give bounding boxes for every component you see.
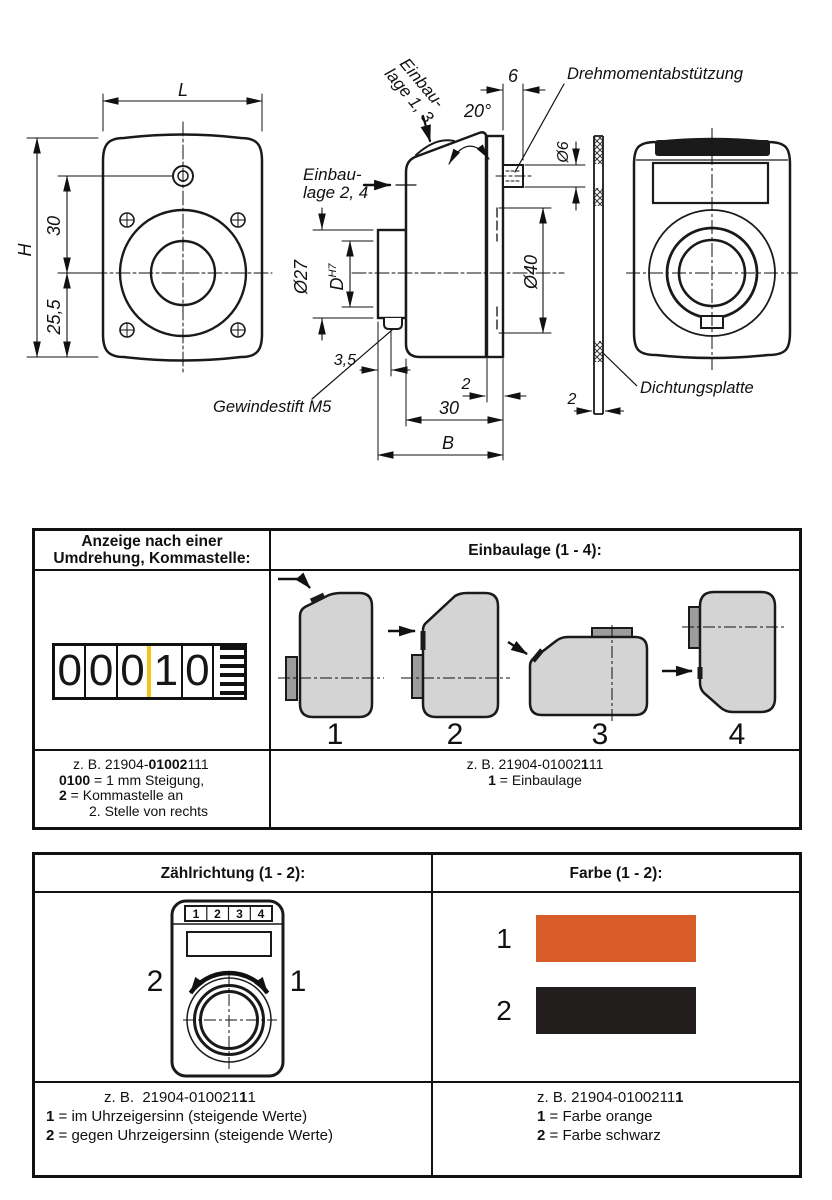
counterclockwise-line: 2 = gegen Uhrzeigersinn (steigende Werte… <box>46 1126 431 1145</box>
dim-label-seal-2: 2 <box>567 391 577 408</box>
torque-label-text: Drehmomentabstützung <box>567 65 744 83</box>
counter-digit: 1 <box>151 646 182 697</box>
dim-label-L: L <box>178 80 188 100</box>
example-code-line: z. B. 21904-01002111 <box>73 757 269 773</box>
device-mini-counter: 1 2 3 4 <box>185 906 272 921</box>
dimension-35: 3,5 <box>334 322 410 460</box>
position-number-2: 2 <box>447 718 464 749</box>
color-number-1: 1 <box>487 915 521 962</box>
zaehlrichtung-drawing-cell: 1 2 3 4 2 1 <box>35 893 433 1083</box>
steigung-line: 0100 = 1 mm Steigung, <box>59 773 269 789</box>
position-number-1: 1 <box>327 718 344 749</box>
dimension-shaft-DH7: DH7 <box>327 241 373 307</box>
dim-label-20deg: 20° <box>463 101 491 121</box>
counter-digit: 0 <box>86 646 117 697</box>
dim-label-255: 25,5 <box>44 299 64 336</box>
counter-thumb-wheel <box>214 646 244 697</box>
einbaulage-position-4: 4 <box>662 592 785 749</box>
catalog-page: L H 30 25,5 Einbau- lage 2, 4 <box>0 0 832 1200</box>
anzeige-example-text: z. B. 21904-01002111 0100 = 1 mm Steigun… <box>35 751 271 827</box>
einbaulage-example-text: z. B. 21904-01002111 1 = Einbaulage <box>271 751 799 827</box>
zaehlrichtung-example-text: z. B. 21904-01002111 1 = im Uhrzeigersin… <box>35 1083 433 1175</box>
dim-label-dia40: Ø40 <box>521 255 541 290</box>
header-zaehlrichtung-text: Zählrichtung (1 - 2): <box>161 865 306 882</box>
wheel-stripes <box>220 646 244 697</box>
setscrew-label-text: Gewindestift M5 <box>213 398 332 416</box>
label-einbaulage-13: Einbau- lage 1, 3 <box>381 53 452 141</box>
header-einbaulage-text: Einbaulage (1 - 4): <box>468 542 602 559</box>
dimension-B: B <box>378 433 503 455</box>
kommastelle-line: 2 = Kommastelle an <box>59 788 269 804</box>
header-anzeige-line2: Umdrehung, Kommastelle: <box>53 550 250 567</box>
header-zaehlrichtung: Zählrichtung (1 - 2): <box>35 855 433 893</box>
dim-label-H: H <box>15 243 35 257</box>
direction-number-right: 1 <box>290 965 307 998</box>
side-set-screw <box>384 318 402 329</box>
header-einbaulage: Einbaulage (1 - 4): <box>271 531 799 571</box>
color-swatch-black <box>536 987 696 1034</box>
dim-label-30b: 30 <box>439 398 459 418</box>
position-number-3: 3 <box>592 718 609 749</box>
mini-digit-2: 2 <box>214 907 221 921</box>
rear-window <box>653 163 768 203</box>
farbe-schwarz-line: 2 = Farbe schwarz <box>537 1126 799 1145</box>
side-body <box>406 132 486 357</box>
rear-view <box>626 128 798 370</box>
example-code-line: z. B. 21904-01002111 <box>104 1088 431 1107</box>
counter-digit: 0 <box>183 646 214 697</box>
header-farbe-text: Farbe (1 - 2): <box>569 865 662 882</box>
dim-label-2: 2 <box>461 376 471 393</box>
einbaulage-drawings-cell: 1 2 3 <box>271 571 799 751</box>
dimension-2-plate: 2 <box>461 359 526 460</box>
header-anzeige: Anzeige nach einer Umdrehung, Kommastell… <box>35 531 271 571</box>
dim-label-B: B <box>442 433 454 453</box>
counter-digit: 0 <box>55 646 86 697</box>
seal-hatch-3 <box>594 341 603 362</box>
front-view: L H 30 25,5 <box>15 80 272 372</box>
kommastelle-line2: 2. Stelle von rechts <box>89 804 269 820</box>
dim-label-30: 30 <box>44 216 64 236</box>
dim-label-35: 3,5 <box>334 352 356 369</box>
zaehlrichtung-device-drawing: 1 2 3 4 2 1 <box>35 893 431 1081</box>
header-farbe: Farbe (1 - 2): <box>433 855 799 893</box>
table-zaehlrichtung-farbe: Zählrichtung (1 - 2): Farbe (1 - 2): 1 2… <box>32 852 802 1178</box>
counter-display-cell: 0 0 0 1 0 <box>35 571 271 751</box>
seal-leader <box>602 352 637 386</box>
example-code-line: z. B. 21904-01002111 <box>271 757 799 773</box>
table-anzeige-einbaulage: Anzeige nach einer Umdrehung, Kommastell… <box>32 528 802 830</box>
seal-hatch-2 <box>594 188 603 206</box>
dim-label-dia27: Ø27 <box>291 259 311 295</box>
mini-digit-3: 3 <box>236 907 243 921</box>
dimension-dia40: Ø40 <box>499 208 551 333</box>
einbaulage-position-3: 3 <box>508 625 647 749</box>
einbaulage-positions-drawing: 1 2 3 <box>271 571 799 749</box>
svg-text:lage 2, 4: lage 2, 4 <box>303 183 368 202</box>
side-hub <box>378 230 406 318</box>
clockwise-line: 1 = im Uhrzeigersinn (steigende Werte) <box>46 1107 431 1126</box>
farbe-orange-line: 1 = Farbe orange <box>537 1107 799 1126</box>
side-back-plate <box>487 136 503 357</box>
label-einbaulage-24: Einbau- lage 2, 4 <box>303 165 390 202</box>
counter-digit-decimal-marker: 0 <box>118 646 151 697</box>
color-number-2: 2 <box>487 987 521 1034</box>
example-code-line: z. B. 21904-01002111 <box>537 1088 799 1107</box>
farbe-swatches-cell: 1 2 <box>433 893 799 1083</box>
dim-label-dia6: Ø6 <box>555 141 572 163</box>
dimension-pin-dia6: Ø6 <box>525 141 585 210</box>
svg-text:Einbau-: Einbau- <box>303 165 362 184</box>
farbe-example-text: z. B. 21904-01002111 1 = Farbe orange 2 … <box>433 1083 799 1175</box>
einbaulage-position-2: 2 <box>388 593 510 749</box>
dimension-seal-2: 2 <box>567 391 624 411</box>
color-swatch-orange <box>536 915 696 962</box>
counter-display: 0 0 0 1 0 <box>52 643 247 700</box>
seal-outline <box>594 136 603 414</box>
direction-number-left: 2 <box>147 965 164 998</box>
device-window <box>187 932 271 956</box>
mini-digit-1: 1 <box>193 907 200 921</box>
einbaulage-position-1: 1 <box>278 579 384 749</box>
dimension-30-body: 30 <box>406 359 503 426</box>
einbaulage-line: 1 = Einbaulage <box>271 773 799 789</box>
technical-drawing: L H 30 25,5 Einbau- lage 2, 4 <box>0 0 832 512</box>
seal-label-text: Dichtungsplatte <box>640 379 754 397</box>
seal-hatch-1 <box>594 137 603 164</box>
header-anzeige-line1: Anzeige nach einer <box>81 533 222 550</box>
dim-label-DH7: DH7 <box>327 263 347 291</box>
position-number-4: 4 <box>729 718 746 749</box>
dim-label-6: 6 <box>508 66 519 86</box>
mini-digit-4: 4 <box>258 907 265 921</box>
setscrew-leader <box>312 330 392 399</box>
